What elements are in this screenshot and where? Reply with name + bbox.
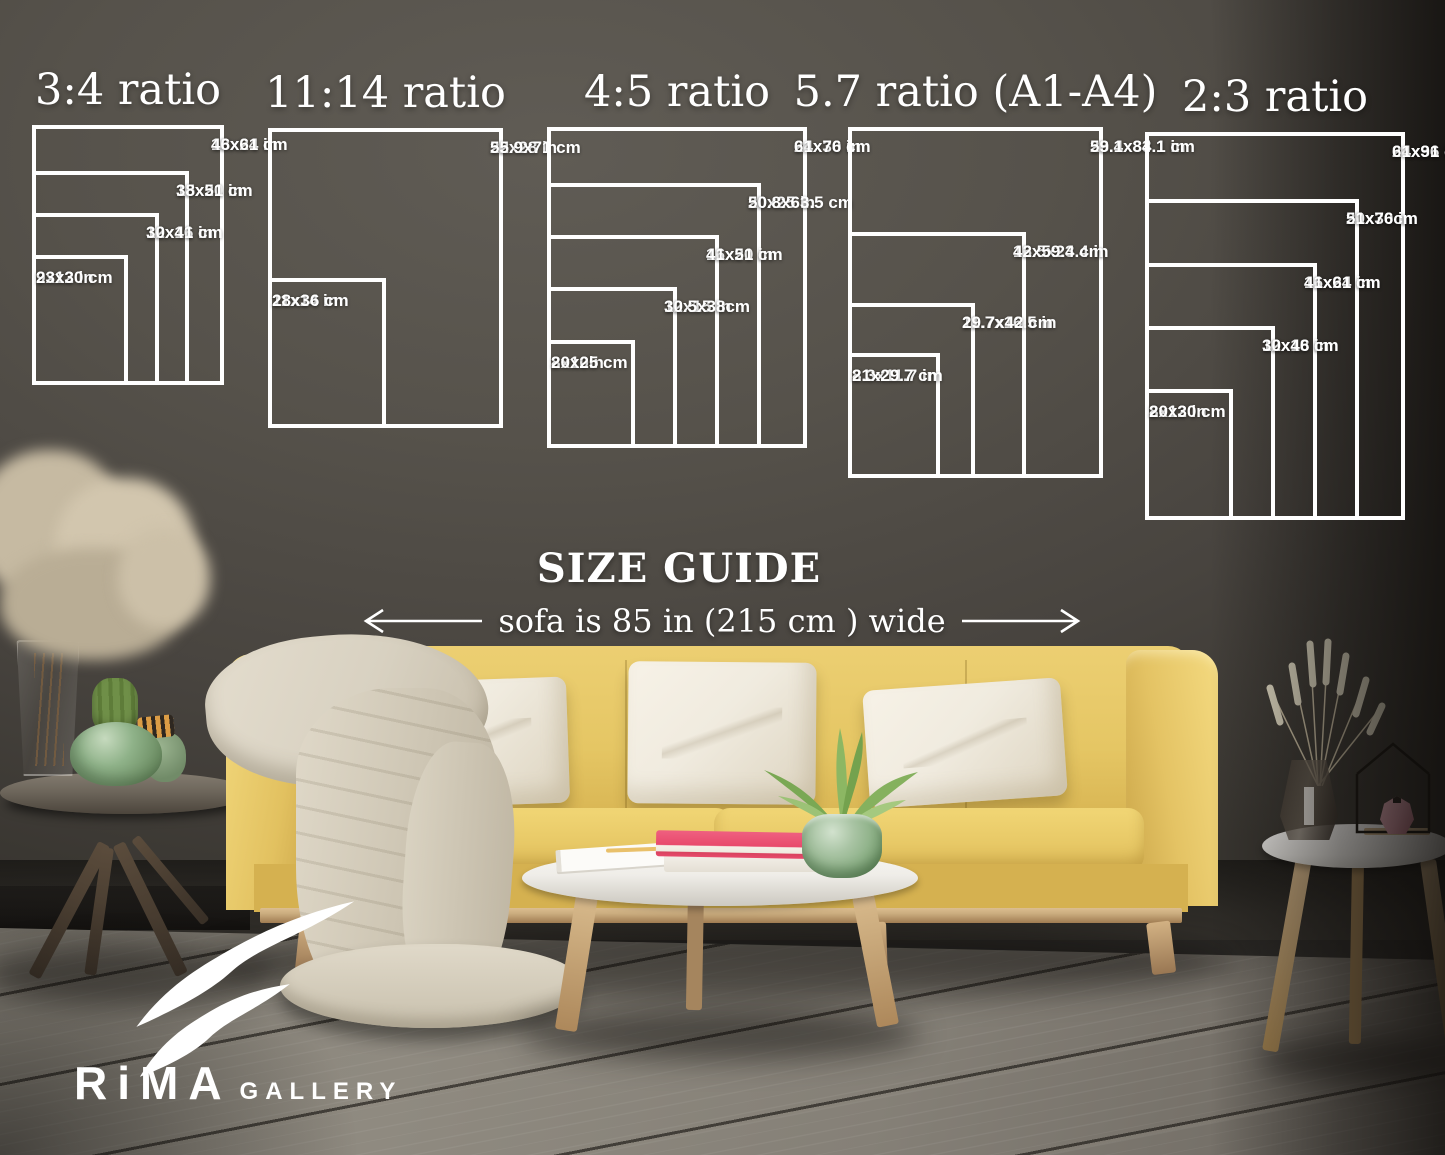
ratio-title: 4:5 ratio — [584, 71, 770, 114]
arrow-right-icon — [960, 606, 1082, 636]
size-rect: 9x12 in23x30 cm — [36, 255, 128, 381]
logo-swoosh-icon — [98, 895, 369, 1083]
size-frame: 24x30 in61x76 cm20x25 in50.8x63.5 cm16x2… — [547, 127, 807, 448]
coffee-table-shadow — [520, 1008, 920, 1060]
size-guide-poster: 3:4 ratio 18x24 in46x61 cm15x20 in38x51 … — [0, 0, 1445, 1155]
sofa-width-note: sofa is 85 in (215 cm ) wide — [386, 602, 1058, 640]
ratio-title: 11:14 ratio — [265, 72, 506, 115]
size-frame: 23.4x33.1 in59.1x84.1 cm16.5x23.4 in42x5… — [848, 127, 1103, 478]
size-frame: 18x24 in46x61 cm15x20 in38x51 cm12x16 in… — [32, 125, 224, 385]
brand-logo: RiMA GALLERY — [70, 898, 450, 1110]
size-rect: 11x14 in28x36 cm — [272, 278, 386, 424]
ratio-title: 5.7 ratio (A1-A4) — [794, 71, 1158, 114]
ratio-group-3-4: 3:4 ratio 18x24 in46x61 cm15x20 in38x51 … — [32, 125, 224, 385]
size-rect: 8.3x11.7 in21x29.7 cm — [852, 353, 940, 474]
brand-name: RiMA — [74, 1060, 232, 1106]
size-rect: 8x10in20x25 cm — [551, 340, 635, 444]
ratio-group-11-14: 11:14 ratio 22x28 in55.9x71 cm11x14 in28… — [268, 128, 503, 428]
ratio-group-5-7: 5.7 ratio (A1-A4) 23.4x33.1 in59.1x84.1 … — [848, 127, 1103, 478]
ratio-title: 3:4 ratio — [35, 69, 221, 112]
pampas-grass — [118, 528, 210, 628]
size-rect: 8x12 in20x30 cm — [1149, 389, 1233, 516]
coffee-table-leg — [686, 890, 704, 1010]
ratio-title: 2:3 ratio — [1182, 76, 1368, 119]
ratio-group-2-3: 2:3 ratio 24x36 in61x91 cm20x30 in51x76c… — [1145, 132, 1405, 520]
size-frame: 22x28 in55.9x71 cm11x14 in28x36 cm — [268, 128, 503, 428]
size-frame: 24x36 in61x91 cm20x30 in51x76cm16x24 in4… — [1145, 132, 1405, 520]
sofa-width-text: sofa is 85 in (215 cm ) wide — [498, 602, 945, 640]
ceramic-vase-large — [70, 722, 162, 786]
arrow-left-icon — [362, 606, 484, 636]
logo-text: RiMA GALLERY — [74, 1060, 402, 1106]
size-guide-heading: SIZE GUIDE — [479, 545, 879, 592]
plant-pot — [802, 814, 882, 878]
ratio-group-4-5: 4:5 ratio 24x30 in61x76 cm20x25 in50.8x6… — [547, 127, 807, 448]
brand-suffix: GALLERY — [240, 1080, 403, 1104]
